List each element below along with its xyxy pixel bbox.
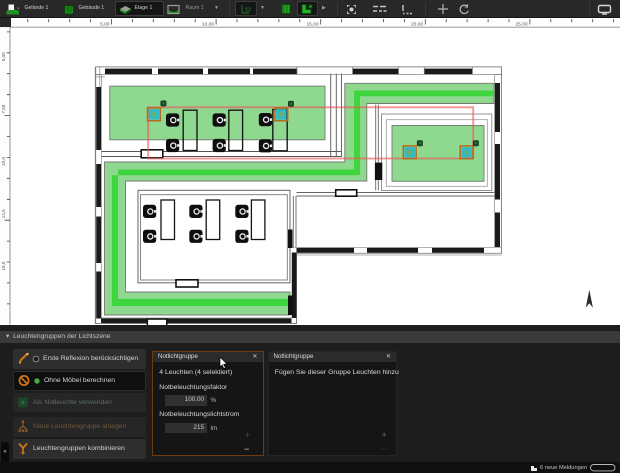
svg-text:5,00: 5,00 <box>1 52 6 61</box>
svg-text:12,5: 12,5 <box>1 209 6 218</box>
svg-text:15,0: 15,0 <box>1 261 6 270</box>
svg-text:10,0: 10,0 <box>1 157 6 166</box>
svg-text:10,00: 10,00 <box>202 22 214 28</box>
svg-text:25,00: 25,00 <box>515 22 527 28</box>
svg-text:7,50: 7,50 <box>1 104 6 113</box>
svg-text:20,00: 20,00 <box>411 22 423 28</box>
svg-text:5,00: 5,00 <box>100 22 110 28</box>
svg-text:15,00: 15,00 <box>306 22 318 28</box>
